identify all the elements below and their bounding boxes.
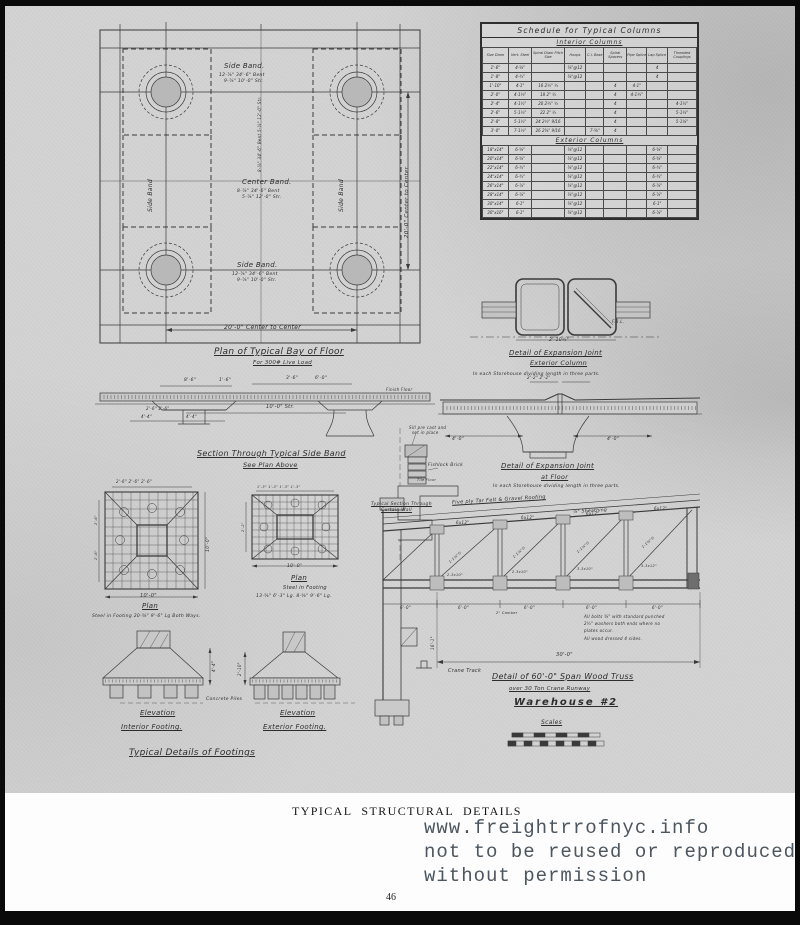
schedule-col-header: Lap Splice (647, 48, 667, 64)
schedule-cell: 18 2" ½ (532, 91, 564, 100)
schedule-cell (627, 164, 647, 173)
schedule-cell: 1'-10" (483, 82, 509, 91)
truss-note-1: All bolts ⅝" with standard punched (584, 615, 665, 619)
schedule-cell (627, 182, 647, 191)
section-dim-small: 2'-6" 2'-6" (146, 407, 170, 411)
side-band-bottom-label: Side Band. (237, 262, 278, 270)
schedule-cell: ⅜"@12 (564, 155, 586, 164)
schedule-cell (667, 164, 696, 173)
schedule-cell: 1'-6" (483, 64, 509, 73)
schedule-cell: 6-⅞" (508, 182, 532, 191)
schedule-cell (586, 109, 604, 118)
schedule-cell: 26"x14" (483, 182, 509, 191)
schedule-exterior-header: Exterior Columns (482, 136, 697, 145)
section-dim-44b: 4'-4" (186, 415, 197, 419)
schedule-cell: 4 (604, 91, 627, 100)
camber-note: 2" Camber (496, 612, 517, 616)
schedule-interior-table: Size DiamVert. SteelSpiral Diam Pitch Si… (482, 47, 697, 136)
schedule-cell: 6-¾" (647, 173, 667, 182)
exp-floor-title1: Detail of Expansion Joint (501, 463, 594, 471)
footing-rect-note1: Steel in Footing (283, 586, 327, 592)
schedule-cell: 18"x14" (483, 146, 509, 155)
schedule-row: 30"x16"6-1"⅜"@126-⅞" (483, 209, 697, 218)
schedule-cell (667, 182, 696, 191)
schedule-cell: 5-1¼" (508, 109, 532, 118)
column-schedule-table: Schedule for Typical Columns Interior Co… (480, 22, 699, 220)
schedule-cell: 24"x14" (483, 173, 509, 182)
exterior-footing-elevation-drawing (244, 632, 341, 699)
schedule-cell: 20"x14" (483, 155, 509, 164)
schedule-cell: 4-1½" (508, 100, 532, 109)
schedule-cell: 2'-0" (483, 91, 509, 100)
schedule-cell: ⅜"@12 (564, 146, 586, 155)
bottom-chord-label-1: 2-3x10" (512, 571, 528, 575)
schedule-row: 1'-10"4-1"16 2½" ½44-1" (483, 82, 697, 91)
schedule-cell (564, 109, 586, 118)
schedule-cell: 30"x16" (483, 209, 509, 218)
schedule-col-header: Hoops (564, 48, 586, 64)
height-dim: 16'-1" (431, 636, 435, 650)
schedule-col-header: Vert. Steel (508, 48, 532, 64)
schedule-cell: ⅜"@12 (564, 209, 586, 218)
schedule-cell (532, 200, 564, 209)
schedule-cell (532, 155, 564, 164)
schedule-cell: 6-⅞" (647, 182, 667, 191)
section-dim-3: 6'-0" (315, 377, 327, 382)
exp-col-title1: Detail of Expansion Joint (509, 350, 602, 358)
footing-rect-dim-left: 2'-2" (242, 522, 246, 532)
schedule-cell (667, 91, 696, 100)
schedule-cell: 6-¾" (647, 164, 667, 173)
watermark-text: www.freightrrofnyc.info not to be reused… (424, 816, 796, 888)
span-dim: 30'-0" (556, 653, 573, 659)
schedule-row: 20"x14"6-⅝"⅜"@126-⅝" (483, 155, 697, 164)
schedule-header-row: Size DiamVert. SteelSpiral Diam Pitch Si… (483, 48, 697, 64)
schedule-cell: 28"x14" (483, 191, 509, 200)
panel-dim-1: 6'-0" (458, 606, 469, 610)
purlin-label-3: 6x12" (654, 507, 667, 511)
schedule-cell: 4 (604, 127, 627, 136)
schedule-row: 2'-8"5-1½"24 2¼" 9/1645-1⅛" (483, 118, 697, 127)
center-band-label: Center Band. (242, 179, 292, 187)
footing-sq-dim-right: 10'-0" (207, 537, 212, 552)
plan-dim-right: 20'-0" Center to Center (404, 167, 410, 238)
elev-int-label1: Elevation (140, 710, 175, 718)
schedule-cell (604, 155, 627, 164)
section-dim-str: 10'-0" Str. (266, 405, 294, 411)
panel-dim-0: 6'-0" (400, 606, 411, 610)
side-band-vertical-right: Side Band (339, 179, 346, 212)
schedule-cell (627, 73, 647, 82)
schedule-cell (647, 118, 667, 127)
schedule-cell: 6-1" (508, 209, 532, 218)
schedule-cell (667, 73, 696, 82)
schedule-cell: 22"x14" (483, 164, 509, 173)
exterior-footing-plan-drawing (246, 491, 338, 568)
schedule-row: 26"x14"6-⅞"⅜"@126-⅞" (483, 182, 697, 191)
plan-title: Plan of Typical Bay of Floor (214, 348, 344, 358)
schedule-cell: 1'-8" (483, 73, 509, 82)
schedule-cell: 2'-6" (483, 109, 509, 118)
schedule-row: 24"x14"6-¾"⅜"@126-¾" (483, 173, 697, 182)
curtain-wall-label-2: Curtain Wall (381, 509, 412, 514)
exp-col-fbl: F.B.L. (612, 320, 624, 324)
schedule-cell (667, 64, 696, 73)
schedule-cell (667, 191, 696, 200)
truss-title-2: over 30 Ton Crane Runway (509, 686, 590, 692)
schedule-cell (586, 146, 604, 155)
truss-note-2: 2½" washers both ends where no (584, 622, 660, 626)
schedule-cell (586, 73, 604, 82)
schedule-cell: 24 2¼" 9/16 (532, 118, 564, 127)
schedule-cell (586, 173, 604, 182)
schedule-row: 2'-0"4-1¼"18 2" ½44-1¼" (483, 91, 697, 100)
schedule-cell: 6-⅞" (647, 191, 667, 200)
elev-ext-label2: Exterior Footing. (263, 724, 326, 732)
schedule-cell (627, 109, 647, 118)
footing-rect-dim-bottom: 10'-0" (287, 565, 302, 570)
schedule-cell (627, 146, 647, 155)
truss-title-1: Detail of 60'-0" Span Wood Truss (492, 673, 634, 682)
side-band-top-label: Side Band. (224, 63, 265, 71)
schedule-cell: 7-1¼" (508, 127, 532, 136)
schedule-col-header: Pipe Splice (627, 48, 647, 64)
schedule-cell (564, 82, 586, 91)
schedule-cell: 4 (647, 64, 667, 73)
schedule-cell (627, 173, 647, 182)
schedule-row: 22"x14"6-¾"⅜"@126-¾" (483, 164, 697, 173)
interior-footing-plan-drawing (99, 487, 205, 599)
schedule-cell (627, 127, 647, 136)
schedule-cell (627, 100, 647, 109)
schedule-cell (586, 82, 604, 91)
schedule-cell (667, 200, 696, 209)
schedule-cell: 5-1⅛" (667, 118, 696, 127)
footing-sq-dim-bottom: 10'-0" (140, 594, 157, 600)
purlin-label-1: 6x12" (521, 516, 534, 520)
schedule-cell: 20 2¼" ½ (532, 100, 564, 109)
schedule-cell: 6-⅝" (647, 155, 667, 164)
exp-col-dim: 2'-10½" (549, 339, 569, 344)
schedule-cell (564, 118, 586, 127)
side-band-vertical-left: Side Band (148, 179, 155, 212)
schedule-cell: 6-⅝" (508, 146, 532, 155)
schedule-cell (667, 127, 696, 136)
schedule-cell (627, 118, 647, 127)
schedule-cell: ⅜"@12 (564, 73, 586, 82)
schedule-cell (532, 73, 564, 82)
schedule-cell: 4 (604, 109, 627, 118)
schedule-cell (586, 209, 604, 218)
exp-floor-dim-left: 4'-0" (452, 438, 464, 443)
schedule-cell: 16 2½" ½ (532, 82, 564, 91)
fishlock-brick-label: Fishlock Brick (428, 464, 463, 469)
section-dim-44a: 4'-4" (141, 415, 152, 419)
schedule-cell: 4 (604, 100, 627, 109)
schedule-cell (586, 64, 604, 73)
schedule-cell (627, 209, 647, 218)
elev-int-label2: Interior Footing. (121, 724, 182, 732)
schedule-cell: ⅜"@12 (564, 173, 586, 182)
exp-floor-dim-top: 2'-2" 2'-2" (527, 376, 551, 380)
schedule-cell: 4-⅝" (508, 64, 532, 73)
page-number: 46 (386, 892, 396, 903)
schedule-cell (647, 91, 667, 100)
scales-label: Scales (541, 720, 562, 727)
schedule-row: 1'-6"4-⅝"⅜"@124 (483, 64, 697, 73)
center-band-note2: 5-⅞" 12'-0" Str. (242, 196, 282, 201)
exp-floor-note: In each Storehouse dividing length in th… (493, 485, 620, 490)
schedule-cell (532, 191, 564, 200)
schedule-cell: 6-1" (508, 200, 532, 209)
schedule-cell (667, 146, 696, 155)
schedule-cell: ⅜"@12 (564, 182, 586, 191)
side-band-bottom-note2: 9-⅞" 10'-0" Str. (237, 279, 277, 284)
scan-border-bottom (0, 911, 800, 925)
schedule-cell (667, 82, 696, 91)
schedule-cell (647, 127, 667, 136)
schedule-cell (667, 209, 696, 218)
schedule-cell (604, 146, 627, 155)
sill-note-2: set in place (412, 431, 439, 435)
schedule-cell: 6-1" (647, 200, 667, 209)
schedule-cell (604, 173, 627, 182)
footing-sq-dims-top: 2'-6" 2'-6" 2'-6" (116, 480, 152, 484)
schedule-cell: 2'-4" (483, 100, 509, 109)
schedule-cell (564, 91, 586, 100)
watermark-line-2: not to be reused or reproduced (424, 840, 796, 864)
schedule-cell: 4 (604, 82, 627, 91)
schedule-cell: 4-1¼" (627, 91, 647, 100)
watermark-line-3: without permission (424, 864, 796, 888)
scan-border-right (795, 0, 800, 925)
concrete-piles-label: Concrete Piles (206, 698, 242, 703)
schedule-exterior-table: 18"x14"6-⅝"⅜"@126-⅝"20"x14"6-⅝"⅜"@126-⅝"… (482, 145, 697, 218)
scanned-drawing-page: Schedule for Typical Columns Interior Co… (0, 0, 800, 925)
schedule-cell: ⅜"@12 (564, 64, 586, 73)
truss-note-3: plates occur. (584, 629, 613, 633)
tile-floor-label: Tile Floor (417, 479, 436, 483)
schedule-cell: ⅜"@12 (564, 200, 586, 209)
schedule-cell: 22 2" ½ (532, 109, 564, 118)
plan-dim-bottom: 20'-0" Center to Center (224, 325, 301, 332)
truss-note-4: All wood dressed 4 sides. (584, 637, 642, 641)
section-subtitle: See Plan Above (243, 462, 298, 469)
schedule-interior-header: Interior Columns (482, 38, 697, 47)
schedule-cell: ⅜"@12 (564, 191, 586, 200)
schedule-cell (586, 155, 604, 164)
schedule-cell (532, 64, 564, 73)
schedule-cell: ⅜"@12 (564, 164, 586, 173)
schedule-cell: 4-¾" (508, 73, 532, 82)
watermark-line-1: www.freightrrofnyc.info (424, 816, 796, 840)
expansion-joint-floor-drawing (438, 382, 702, 458)
schedule-row: 2'-4"4-1½"20 2¼" ½44-1½" (483, 100, 697, 109)
schedule-cell: 6-¾" (508, 164, 532, 173)
bottom-chord-label-2: 3-3x10" (577, 568, 593, 572)
schedule-cell: 7-⅝" (586, 127, 604, 136)
schedule-cell: 6-⅝" (647, 146, 667, 155)
schedule-cell (604, 191, 627, 200)
schedule-cell (586, 164, 604, 173)
schedule-col-header: Size Diam (483, 48, 509, 64)
schedule-cell (586, 118, 604, 127)
elev-int-dim: 4'-4" (212, 661, 216, 672)
schedule-cell: 6-⅞" (508, 191, 532, 200)
schedule-cell (532, 182, 564, 191)
elev-ext-label1: Elevation (280, 710, 315, 718)
schedule-cell (647, 82, 667, 91)
schedule-cell: 4-1½" (667, 100, 696, 109)
schedule-col-header: Threaded Couplings (667, 48, 696, 64)
schedule-row: 30"x14"6-1"⅜"@126-1" (483, 200, 697, 209)
schedule-cell (604, 200, 627, 209)
schedule-col-header: C.I. Base (586, 48, 604, 64)
schedule-cell (627, 191, 647, 200)
schedule-cell (604, 64, 627, 73)
schedule-cell (627, 200, 647, 209)
exp-col-title2: Exterior Column (530, 360, 587, 367)
panel-dim-2: 6'-0" (524, 606, 535, 610)
schedule-cell (564, 127, 586, 136)
schedule-cell (667, 173, 696, 182)
schedule-row: 2'-6"5-1¼"22 2" ½45-1¼" (483, 109, 697, 118)
schedule-cell: 5-1½" (508, 118, 532, 127)
schedule-row: 18"x14"6-⅝"⅜"@126-⅝" (483, 146, 697, 155)
schedule-cell (647, 109, 667, 118)
schedule-cell: 4 (647, 73, 667, 82)
footing-rect-note2: 13-⅝" 6'-3" Lg. 8-⅝" 9'-6" Lg. (256, 595, 332, 600)
exp-floor-title2: at Floor (541, 474, 568, 481)
schedule-cell (564, 100, 586, 109)
schedule-row: 28"x14"6-⅞"⅜"@126-⅞" (483, 191, 697, 200)
elev-ext-dim: 2'-10" (238, 662, 242, 676)
schedule-cell: 6-¾" (508, 173, 532, 182)
panel-dim-3: 6'-0" (586, 606, 597, 610)
schedule-col-header: Spiral Diam Pitch Size (532, 48, 564, 64)
schedule-cell (647, 100, 667, 109)
schedule-cell: 4-1" (508, 82, 532, 91)
footing-sq-dim-left2: 2'-6" (95, 550, 99, 560)
panel-dim-4: 6'-0" (652, 606, 663, 610)
schedule-cell (667, 155, 696, 164)
footing-rect-dims-top: 1'-3" 1'-3" 1'-3" 1'-3" (257, 486, 300, 490)
schedule-cell (604, 209, 627, 218)
bottom-chord-label-3: 3-3x12" (641, 565, 657, 569)
schedule-cell (586, 91, 604, 100)
schedule-row: 3'-0"7-1¼"26 2⅜" 9/167-⅝"4 (483, 127, 697, 136)
warehouse-title: Warehouse #2 (514, 697, 618, 708)
section-title: Section Through Typical Side Band (197, 450, 346, 459)
schedule-cell (532, 146, 564, 155)
footing-sq-dim-left1: 2'-6" (95, 515, 99, 525)
schedule-cell: 4-1¼" (508, 91, 532, 100)
schedule-cell (586, 200, 604, 209)
scan-border-left (0, 0, 5, 925)
plan-subtitle: For 300# Live Load (253, 360, 312, 366)
schedule-cell (586, 191, 604, 200)
section-dim-2: 3'-6" (286, 377, 298, 382)
schedule-cell (604, 182, 627, 191)
center-band-vertical-note: 8-⅞" 34'-6" Bent 5-⅞" 12'-0" Str. (258, 96, 262, 172)
side-band-top-note2: 9-⅞" 10'-0" Str. (224, 80, 264, 85)
schedule-cell: 26 2⅜" 9/16 (532, 127, 564, 136)
schedule-cell: 5-1¼" (667, 109, 696, 118)
schedule-cell: 4-1" (627, 82, 647, 91)
schedule-cell: 4 (604, 118, 627, 127)
schedule-cell (532, 173, 564, 182)
schedule-cell (586, 100, 604, 109)
purlin-label-2: 6x12" (586, 512, 599, 516)
schedule-cell: 6-⅞" (647, 209, 667, 218)
scan-border-top (0, 0, 800, 6)
schedule-col-header: Spiral Spacers (604, 48, 627, 64)
schedule-cell: 3'-0" (483, 127, 509, 136)
footings-title: Typical Details of Footings (129, 749, 255, 759)
schedule-cell (532, 209, 564, 218)
schedule-title: Schedule for Typical Columns (482, 24, 697, 38)
schedule-row: 1'-8"4-¾"⅜"@124 (483, 73, 697, 82)
curtain-wall-section-drawing (398, 428, 458, 560)
schedule-cell (627, 64, 647, 73)
footing-rect-plan-label: Plan (291, 575, 307, 583)
section-dim-1: 1'-6" (219, 379, 231, 384)
schedule-cell (627, 155, 647, 164)
bottom-chord-label-0: 2-3x10" (447, 574, 463, 578)
purlin-label-0: 6x12" (456, 521, 469, 525)
schedule-cell: 2'-8" (483, 118, 509, 127)
schedule-cell (532, 164, 564, 173)
exp-floor-dim-right: 4'-0" (607, 438, 619, 443)
schedule-cell: 6-⅝" (508, 155, 532, 164)
section-dim-0: 8'-6" (184, 379, 196, 384)
schedule-cell (604, 164, 627, 173)
schedule-cell (604, 73, 627, 82)
footing-sq-note: Steel in Footing 20-⅝" 9'-6" Lg Both Way… (92, 615, 201, 620)
footing-sq-plan-label: Plan (142, 603, 158, 611)
crane-track-label: Crane Track (448, 669, 481, 675)
finish-floor-label: Finish Floor (386, 388, 413, 392)
expansion-joint-column-drawing (470, 279, 660, 340)
schedule-cell (586, 182, 604, 191)
schedule-cell: 30"x14" (483, 200, 509, 209)
